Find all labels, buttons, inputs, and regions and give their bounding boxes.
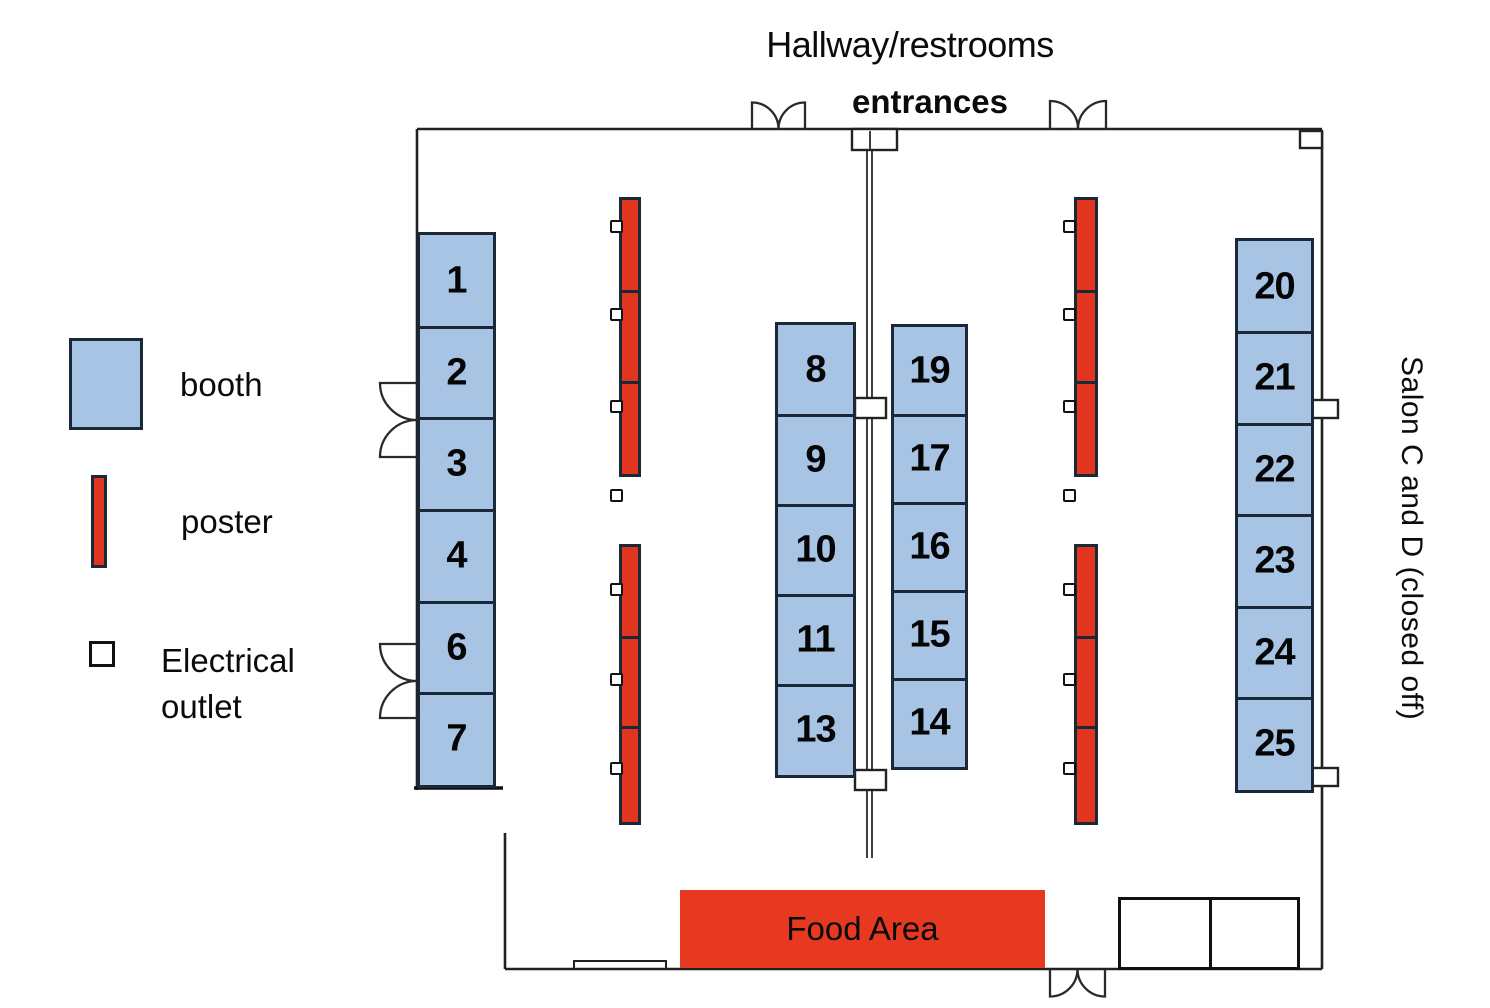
booth-16: 16 — [894, 526, 965, 569]
electrical-outlet — [1063, 762, 1076, 775]
poster-strip — [1074, 544, 1098, 825]
entrances-label: entrances — [740, 83, 1120, 121]
left-wall-door-upper — [380, 383, 417, 457]
legend-booth-swatch — [69, 338, 143, 430]
cell-divider — [893, 678, 966, 681]
booth-24: 24 — [1238, 631, 1311, 674]
booth-25: 25 — [1238, 723, 1311, 766]
booth-3: 3 — [420, 443, 493, 486]
booth-column-right: 202122232425 — [1235, 238, 1314, 793]
legend-booth-label: booth — [180, 366, 263, 404]
booth-19: 19 — [894, 350, 965, 393]
electrical-outlet — [1063, 489, 1076, 502]
booth-11: 11 — [778, 619, 853, 662]
tables-block — [1118, 897, 1300, 970]
divider-junction-box — [855, 398, 886, 418]
booth-column-left: 123467 — [417, 232, 496, 788]
cell-divider — [893, 502, 966, 505]
cell-divider — [1076, 290, 1096, 293]
poster-strip — [1074, 197, 1098, 477]
booth-column-center-right: 1917161514 — [891, 324, 968, 770]
corner-column-box — [1300, 131, 1322, 148]
electrical-outlet — [1063, 400, 1076, 413]
wall-junction-box — [1312, 768, 1338, 786]
electrical-outlet — [610, 673, 623, 686]
cell-divider — [1237, 606, 1312, 609]
hallway-restrooms-label: Hallway/restrooms — [700, 24, 1120, 66]
booth-20: 20 — [1238, 265, 1311, 308]
cell-divider — [419, 601, 494, 604]
cell-divider — [419, 509, 494, 512]
cell-divider — [777, 504, 854, 507]
electrical-outlet — [1063, 673, 1076, 686]
cell-divider — [1237, 697, 1312, 700]
salon-closed-label: Salon C and D (closed off) — [1394, 356, 1428, 816]
cell-divider — [419, 326, 494, 329]
booth-6: 6 — [420, 626, 493, 669]
legend-outlet-label-line2: outlet — [161, 684, 295, 730]
electrical-outlet — [1063, 583, 1076, 596]
tables-divider — [1209, 897, 1212, 970]
booth-column-center-left: 89101113 — [775, 322, 856, 778]
booth-23: 23 — [1238, 540, 1311, 583]
food-area-label: Food Area — [786, 910, 938, 948]
electrical-outlet — [610, 762, 623, 775]
booth-22: 22 — [1238, 448, 1311, 491]
floor-plan: Hallway/restrooms entrances Salon C and … — [0, 0, 1490, 1008]
poster-strip — [619, 197, 641, 477]
cell-divider — [621, 290, 639, 293]
cell-divider — [1237, 514, 1312, 517]
wall-junction-box — [1312, 400, 1338, 418]
cell-divider — [419, 692, 494, 695]
booth-15: 15 — [894, 614, 965, 657]
cell-divider — [893, 414, 966, 417]
legend-outlet-label: Electrical outlet — [161, 638, 295, 730]
booth-17: 17 — [894, 438, 965, 481]
booth-2: 2 — [420, 351, 493, 394]
bottom-door — [1050, 969, 1105, 997]
cell-divider — [893, 590, 966, 593]
cell-divider — [621, 636, 639, 639]
booth-7: 7 — [420, 718, 493, 761]
legend-outlet-label-line1: Electrical — [161, 638, 295, 684]
booth-21: 21 — [1238, 357, 1311, 400]
legend-poster-swatch — [91, 475, 107, 568]
cell-divider — [1076, 726, 1096, 729]
booth-9: 9 — [778, 439, 853, 482]
booth-13: 13 — [778, 709, 853, 752]
cell-divider — [1237, 423, 1312, 426]
cell-divider — [1076, 636, 1096, 639]
divider-junction-box — [855, 770, 886, 790]
electrical-outlet — [1063, 308, 1076, 321]
booth-8: 8 — [778, 349, 853, 392]
cell-divider — [621, 726, 639, 729]
cell-divider — [1237, 331, 1312, 334]
electrical-outlet — [610, 308, 623, 321]
electrical-outlet — [610, 400, 623, 413]
cell-divider — [1076, 381, 1096, 384]
booth-1: 1 — [420, 260, 493, 303]
left-wall-door-lower — [380, 644, 417, 718]
legend-poster-label: poster — [181, 503, 273, 541]
cell-divider — [777, 594, 854, 597]
top-center-column-box — [852, 129, 897, 150]
electrical-outlet — [1063, 220, 1076, 233]
electrical-outlet — [610, 220, 623, 233]
food-area: Food Area — [680, 890, 1045, 968]
cell-divider — [777, 414, 854, 417]
electrical-outlet — [610, 489, 623, 502]
booth-4: 4 — [420, 535, 493, 578]
electrical-outlet — [610, 583, 623, 596]
cell-divider — [777, 684, 854, 687]
cell-divider — [419, 417, 494, 420]
cell-divider — [621, 381, 639, 384]
booth-10: 10 — [778, 529, 853, 572]
legend-outlet-icon — [89, 641, 115, 667]
booth-14: 14 — [894, 702, 965, 745]
